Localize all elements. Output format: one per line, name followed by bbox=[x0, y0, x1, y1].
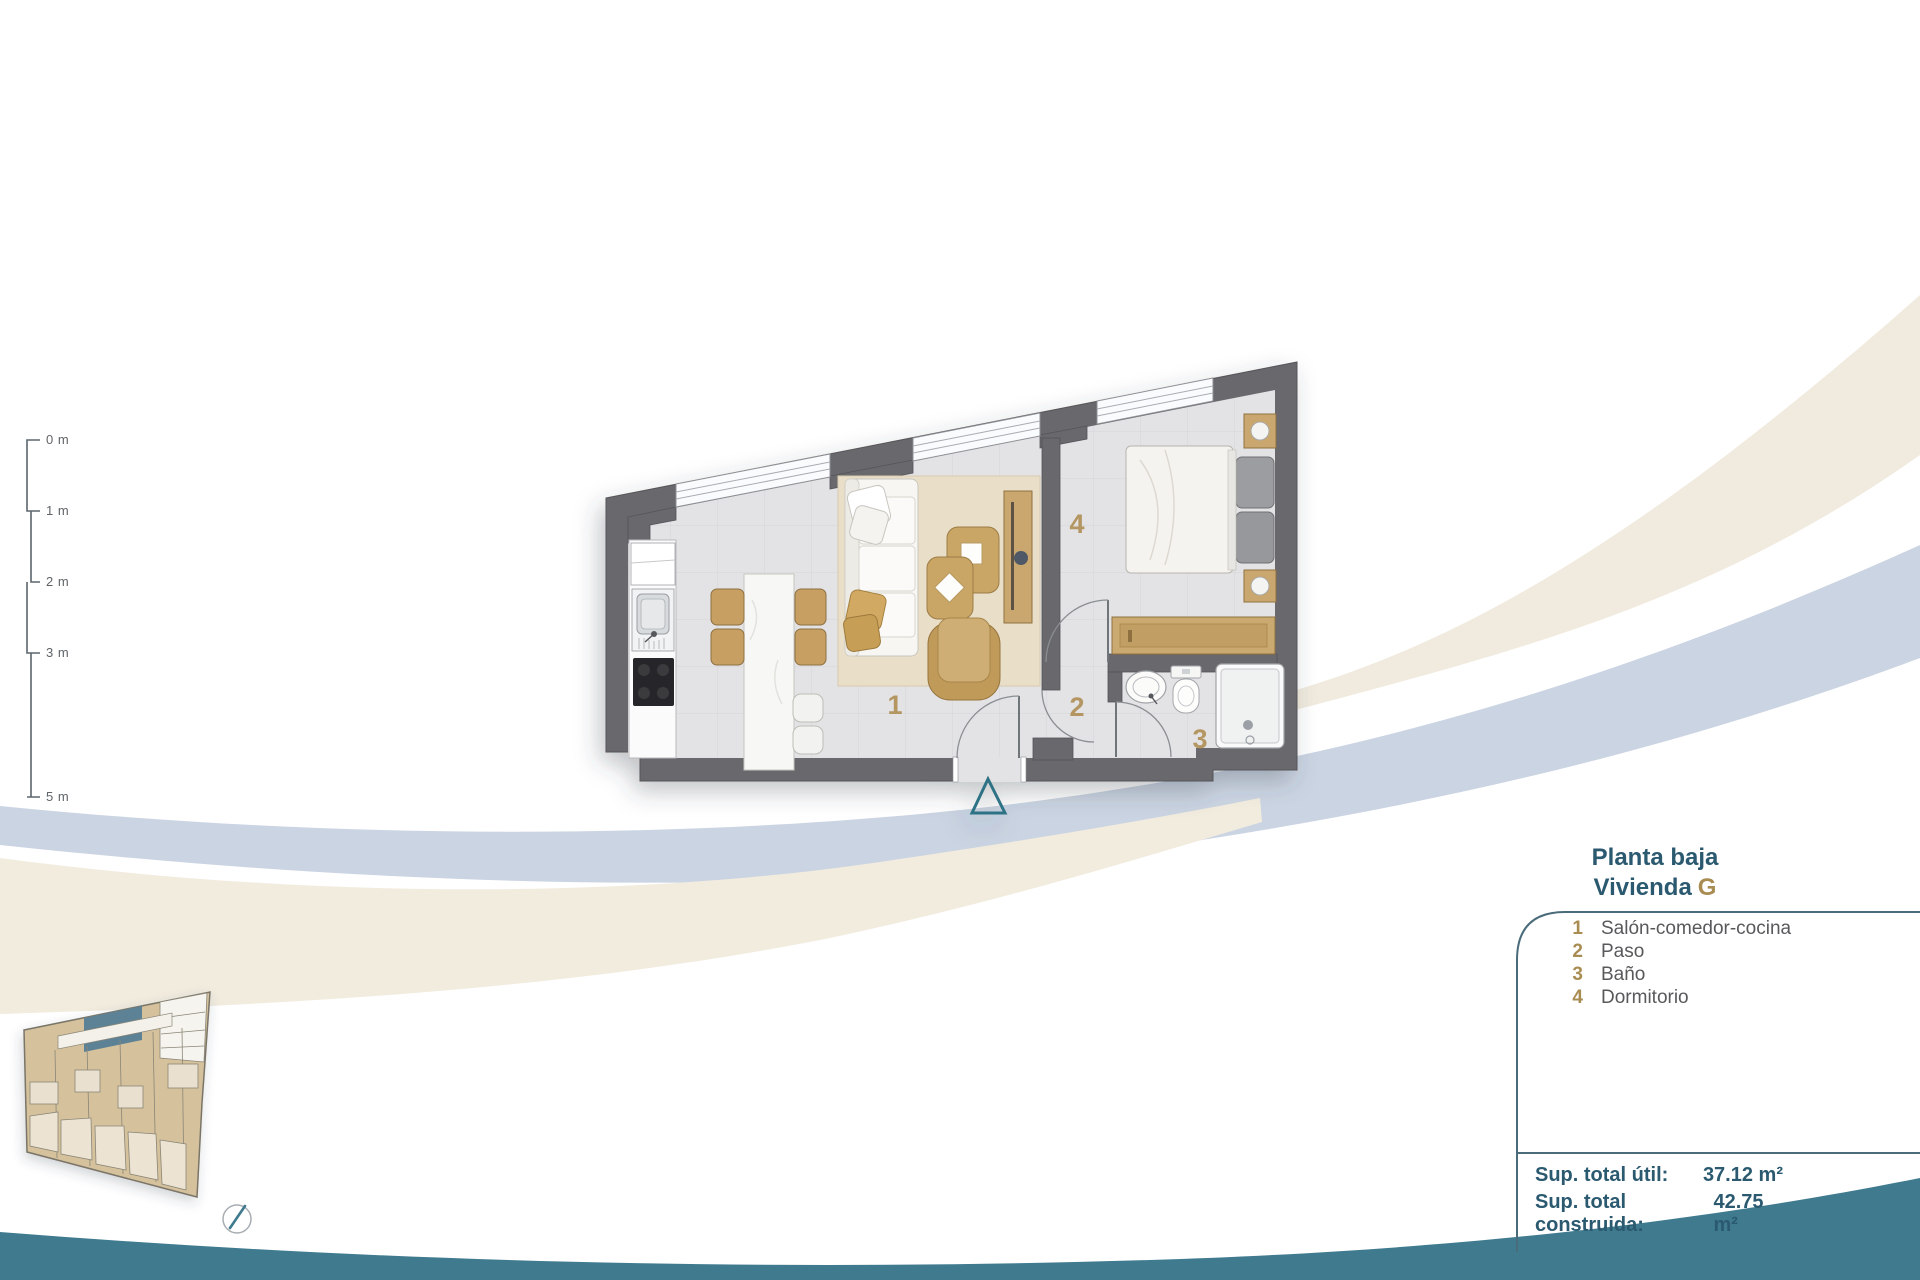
toilet bbox=[1171, 666, 1201, 713]
unit-word: Vivienda bbox=[1594, 874, 1692, 901]
legend-item-label: Baño bbox=[1601, 964, 1645, 986]
brochure-page: 0 m 1 m 2 m 3 m 5 m 1 2 3 4 Planta baja … bbox=[0, 0, 1920, 1280]
floor-title: Planta baja bbox=[1540, 843, 1770, 873]
room-label-living: 1 bbox=[878, 690, 912, 721]
legend-item-label: Salón-comedor-cocina bbox=[1601, 918, 1791, 940]
scale-bar bbox=[27, 440, 40, 797]
dining-chair bbox=[795, 589, 826, 625]
tv-knob bbox=[1014, 551, 1028, 565]
stool bbox=[793, 694, 823, 722]
lamp bbox=[1251, 577, 1269, 595]
room-label-bedroom: 4 bbox=[1060, 509, 1094, 540]
legend-item: 4 Dormitorio bbox=[1545, 987, 1905, 1010]
scale-label-0m: 0 m bbox=[46, 432, 69, 447]
dining-chair bbox=[711, 629, 744, 665]
lamp bbox=[1251, 422, 1269, 440]
scale-label-1m: 1 m bbox=[46, 503, 69, 518]
armchair bbox=[928, 618, 1000, 700]
totals-row: Sup. total útil: 37.12 m² bbox=[1535, 1164, 1783, 1191]
fridge bbox=[631, 543, 675, 585]
compass-icon bbox=[223, 1205, 251, 1233]
totals-value: 37.12 m² bbox=[1703, 1164, 1783, 1187]
shower bbox=[1216, 664, 1284, 748]
pillow bbox=[843, 614, 882, 653]
scale-label-2m: 2 m bbox=[46, 574, 69, 589]
unit-title: ViviendaG bbox=[1540, 873, 1770, 903]
unit-letter: G bbox=[1698, 874, 1717, 901]
stool bbox=[793, 726, 823, 754]
sofa bbox=[843, 479, 918, 656]
legend-item-number: 1 bbox=[1545, 918, 1583, 940]
legend-item-label: Paso bbox=[1601, 941, 1644, 963]
room-legend: 1 Salón-comedor-cocina 2 Paso 3 Baño 4 D… bbox=[1545, 918, 1905, 1010]
kitchen bbox=[629, 540, 676, 758]
totals-row: Sup. total construida: 42.75 m² bbox=[1535, 1191, 1783, 1218]
legend-item: 2 Paso bbox=[1545, 941, 1905, 964]
room-label-hall: 2 bbox=[1060, 692, 1094, 723]
legend-item-number: 4 bbox=[1545, 987, 1583, 1009]
kitchen-sink bbox=[632, 589, 674, 651]
scale-label-3m: 3 m bbox=[46, 645, 69, 660]
dining-chair bbox=[795, 629, 826, 665]
legend-item-label: Dormitorio bbox=[1601, 987, 1689, 1009]
dresser bbox=[1112, 617, 1275, 654]
tv-console bbox=[1004, 491, 1032, 623]
plan-title-block: Planta baja ViviendaG bbox=[1540, 843, 1770, 903]
pillow bbox=[1236, 457, 1274, 508]
surface-totals: Sup. total útil: 37.12 m² Sup. total con… bbox=[1535, 1164, 1783, 1218]
legend-item: 3 Baño bbox=[1545, 964, 1905, 987]
partition-hall-bath bbox=[1108, 672, 1122, 702]
legend-item: 1 Salón-comedor-cocina bbox=[1545, 918, 1905, 941]
dining-island bbox=[744, 574, 794, 770]
wall-step bbox=[1033, 738, 1073, 760]
shower-drain bbox=[1243, 720, 1253, 730]
dining-chair bbox=[711, 589, 744, 625]
legend-item-number: 2 bbox=[1545, 941, 1583, 963]
page-graphics bbox=[0, 0, 1920, 1280]
scale-label-5m: 5 m bbox=[46, 789, 69, 804]
entrance-opening bbox=[953, 757, 1026, 782]
nightstand bbox=[1244, 570, 1276, 602]
room-label-bath: 3 bbox=[1183, 724, 1217, 755]
cooktop bbox=[633, 658, 674, 706]
nightstand bbox=[1244, 414, 1276, 448]
totals-value: 42.75 m² bbox=[1713, 1191, 1783, 1237]
location-map bbox=[24, 992, 210, 1197]
legend-item-number: 3 bbox=[1545, 964, 1583, 986]
totals-label: Sup. total útil: bbox=[1535, 1164, 1668, 1187]
partition-living-bedroom bbox=[1042, 438, 1060, 690]
totals-label: Sup. total construida: bbox=[1535, 1191, 1713, 1237]
pillow bbox=[1236, 512, 1274, 563]
map-building-core bbox=[160, 993, 207, 1062]
washbasin bbox=[1126, 671, 1166, 704]
